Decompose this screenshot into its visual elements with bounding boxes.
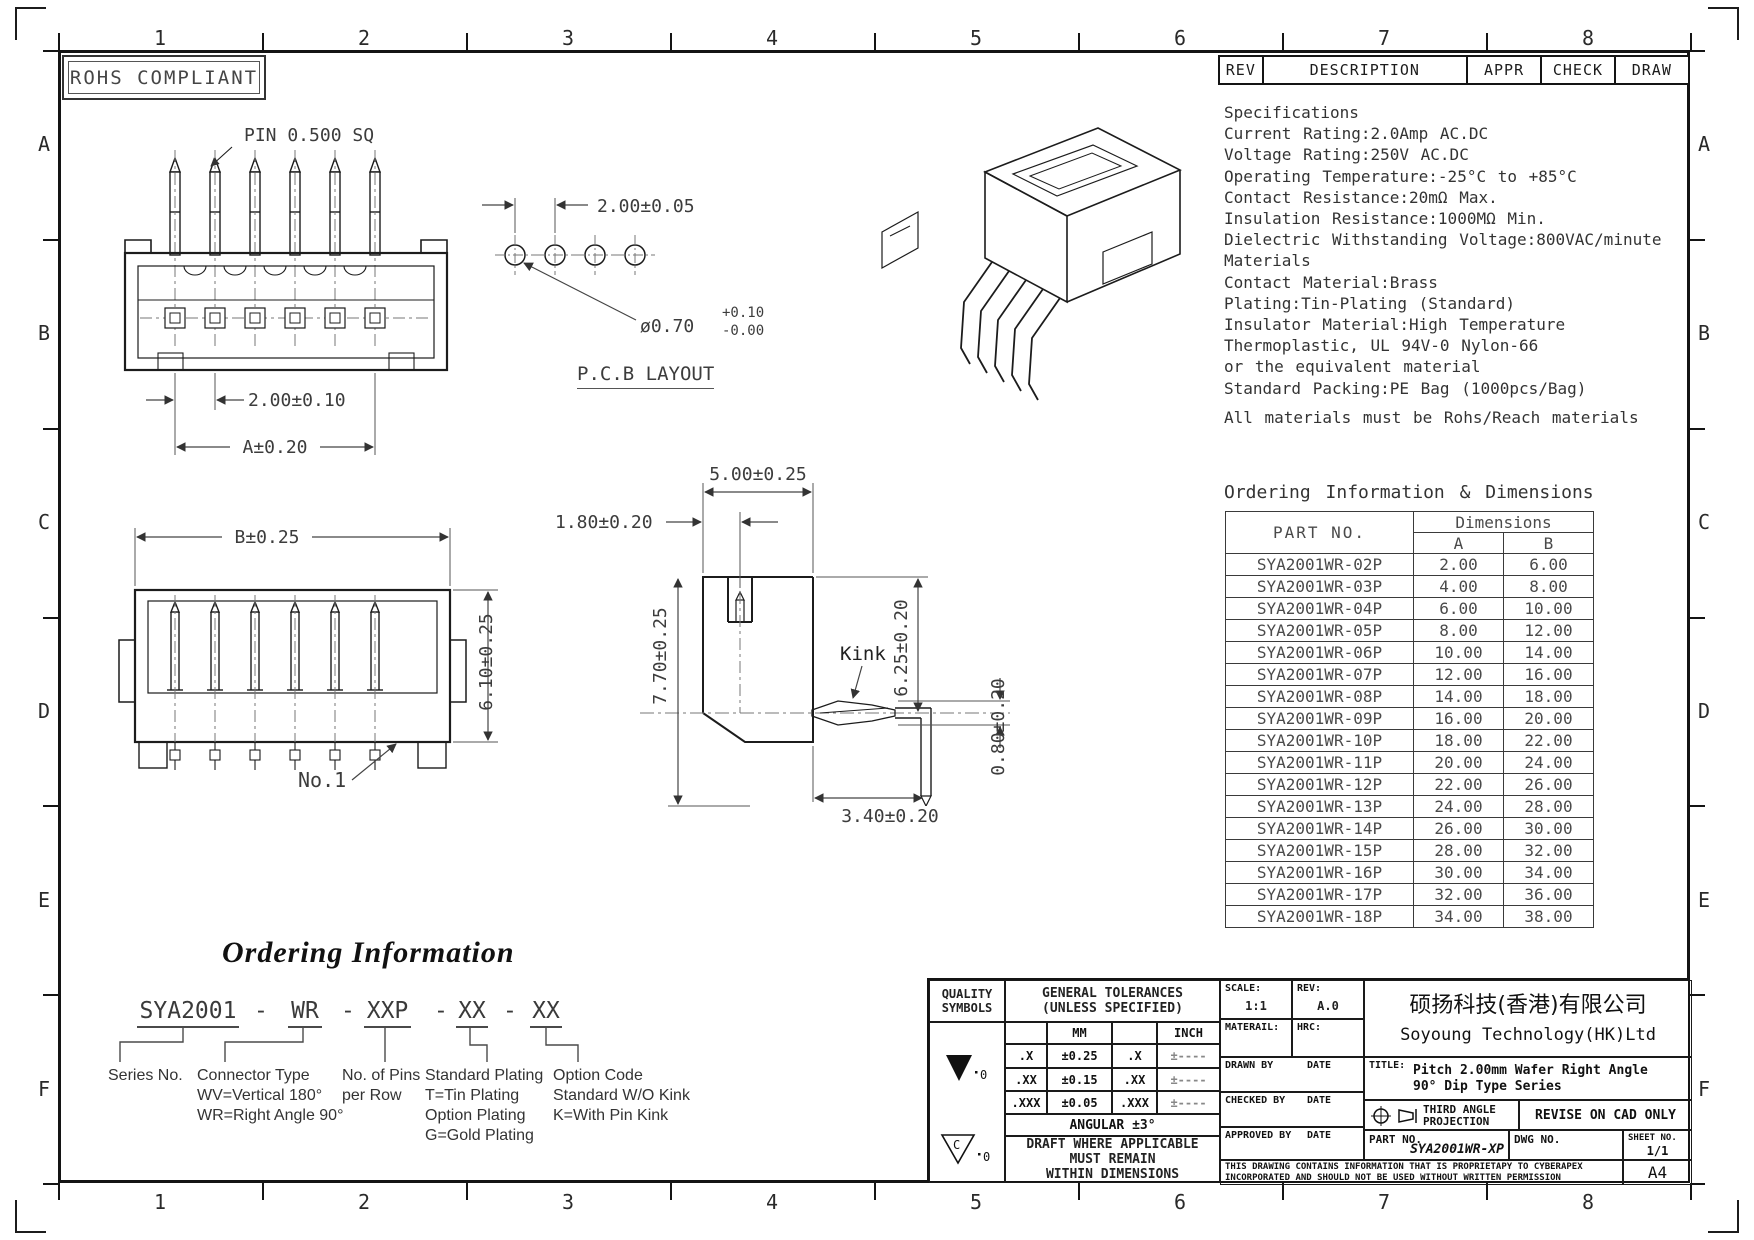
rear-overall-dim: B±0.25 <box>222 527 312 548</box>
legend-line: WR=Right Angle 90° <box>197 1106 343 1126</box>
company-name-en: Soyoung Technology(HK)Ltd <box>1365 1025 1691 1045</box>
front-overall-dim: A±0.20 <box>230 437 320 458</box>
pcb-pitch-dim: 2.00±0.05 <box>597 196 695 217</box>
check-col-header: CHECK <box>1542 57 1615 83</box>
table-row: SYA2001WR-14P26.0030.00 <box>1226 818 1594 840</box>
pcb-hole-tol-plus: +0.10 <box>722 305 764 321</box>
paper-size: A4 <box>1623 1160 1692 1185</box>
grid-col-label: 1 <box>148 1190 172 1214</box>
grid-col-label: 5 <box>964 26 988 50</box>
grid-row-label: F <box>1692 1077 1716 1101</box>
rear-height-dim: 6.10±0.25 <box>476 596 497 728</box>
rev-cell: REV: A.0 <box>1292 980 1364 1019</box>
side-offset-dim: 1.80±0.20 <box>555 512 653 533</box>
sheet-no-cell: SHEET NO. 1/1 <box>1623 1130 1692 1160</box>
table-row: SYA2001WR-09P16.0020.00 <box>1226 708 1594 730</box>
tol-mm-value: ±0.15 <box>1047 1068 1112 1091</box>
grid-tick <box>1690 1183 1705 1185</box>
revision-bar: REV DESCRIPTION APPR CHECK DRAW <box>1218 55 1690 85</box>
tol-inch-value: ±---- <box>1157 1068 1220 1091</box>
quality-symbols-header: QUALITY SYMBOLS <box>929 980 1005 1022</box>
drawing-title-line1: Pitch 2.00mm Wafer Right Angle <box>1413 1063 1648 1079</box>
grid-col-label: 8 <box>1576 26 1600 50</box>
grid-row-label: C <box>1692 510 1716 534</box>
grid-tick <box>43 239 58 241</box>
code-type: WR <box>288 998 322 1028</box>
part-no-value: SYA2001WR-XP <box>1410 1142 1504 1157</box>
grid-tick <box>1282 1183 1284 1200</box>
grid-tick <box>1486 1183 1488 1200</box>
grid-tick <box>43 50 58 52</box>
grid-tick <box>1690 50 1705 52</box>
grid-row-label: A <box>1692 132 1716 156</box>
code-series: SYA2001 <box>137 998 239 1028</box>
dwg-no-cell: DWG NO. <box>1509 1130 1623 1160</box>
grid-tick <box>43 1183 58 1185</box>
revise-note: REVISE ON CAD ONLY <box>1519 1100 1692 1130</box>
grid-tick <box>874 1183 876 1200</box>
grid-row-label: C <box>32 510 56 534</box>
ordering-legend-4: Option CodeStandard W/O KinkK=With Pin K… <box>553 1066 690 1126</box>
grid-tick <box>43 428 58 430</box>
scale-cell: SCALE: 1:1 <box>1220 980 1292 1019</box>
grid-col-label: 7 <box>1372 1190 1396 1214</box>
projection-cell: THIRD ANGLE PROJECTION <box>1364 1100 1519 1130</box>
code-separator: - <box>341 998 355 1024</box>
dimensions-header: Dimensions <box>1414 512 1594 533</box>
grid-col-label: 1 <box>148 26 172 50</box>
pin1-label: No.1 <box>298 768 346 792</box>
legend-line: K=With Pin Kink <box>553 1106 690 1126</box>
ordering-code-connectors <box>120 1027 578 1062</box>
table-row: SYA2001WR-06P10.0014.00 <box>1226 642 1594 664</box>
grid-row-label: D <box>32 699 56 723</box>
grid-tick <box>1078 33 1080 50</box>
legend-line: Series No. <box>108 1066 183 1086</box>
tol-mm-value: ±0.25 <box>1047 1044 1112 1068</box>
tol-row-label: .XXX <box>1112 1091 1157 1114</box>
grid-tick <box>43 994 58 996</box>
grid-col-label: 6 <box>1168 26 1192 50</box>
grid-tick <box>1690 805 1705 807</box>
grid-tick <box>262 33 264 50</box>
ordering-legend-1: Connector TypeWV=Vertical 180°WR=Right A… <box>197 1066 343 1126</box>
hrc-cell: HRC: <box>1292 1019 1364 1057</box>
ordering-table-title: Ordering Information & Dimensions <box>1224 482 1594 503</box>
spec-line: Current Rating:2.0Amp AC.DC <box>1224 123 1694 144</box>
rohs-badge-label: ROHS COMPLIANT <box>68 61 260 94</box>
grid-tick <box>1486 33 1488 50</box>
checked-by-cell: CHECKED BY DATE <box>1220 1092 1364 1127</box>
table-row: SYA2001WR-05P8.0012.00 <box>1226 620 1594 642</box>
appr-col-header: APPR <box>1468 57 1542 83</box>
isometric-view <box>882 128 1180 400</box>
spec-line: Insulator Material:High Temperature <box>1224 314 1694 335</box>
grid-tick <box>43 617 58 619</box>
third-angle-projection-icon <box>1369 1103 1421 1129</box>
drawing-sheet: ROHS COMPLIANT REV DESCRIPTION APPR CHEC… <box>0 0 1754 1240</box>
grid-tick <box>1690 33 1692 50</box>
grid-tick <box>43 805 58 807</box>
spec-line: Contact Material:Brass <box>1224 272 1694 293</box>
spec-line: Voltage Rating:250V AC.DC <box>1224 144 1694 165</box>
side-depth-dim: 5.00±0.25 <box>705 464 811 485</box>
grid-tick <box>670 1183 672 1200</box>
table-row: SYA2001WR-11P20.0024.00 <box>1226 752 1594 774</box>
drawing-title-line2: 90° Dip Type Series <box>1413 1079 1648 1095</box>
grid-col-label: 6 <box>1168 1190 1192 1214</box>
code-option: XX <box>530 998 562 1028</box>
table-row: SYA2001WR-08P14.0018.00 <box>1226 686 1594 708</box>
grid-row-label: D <box>1692 699 1716 723</box>
spec-line: or the equivalent material <box>1224 356 1694 377</box>
grid-tick <box>262 1183 264 1200</box>
table-row: SYA2001WR-16P30.0034.00 <box>1226 862 1594 884</box>
table-row: SYA2001WR-17P32.0036.00 <box>1226 884 1594 906</box>
general-tolerances-header: GENERAL TOLERANCES (UNLESS SPECIFIED) <box>1005 980 1220 1022</box>
side-body-dim: 6.25±0.20 <box>891 580 912 716</box>
table-row: SYA2001WR-07P12.0016.00 <box>1226 664 1594 686</box>
grid-col-label: 3 <box>556 1190 580 1214</box>
spec-line: Plating:Tin-Plating (Standard) <box>1224 293 1694 314</box>
dim-a-header: A <box>1414 533 1504 554</box>
draw-col-header: DRAW <box>1616 57 1688 83</box>
legend-line: WV=Vertical 180° <box>197 1086 343 1106</box>
grid-tick <box>670 33 672 50</box>
pcb-hole-tol-minus: -0.00 <box>722 323 764 339</box>
front-pitch-dim: 2.00±0.10 <box>248 390 346 411</box>
grid-col-label: 2 <box>352 26 376 50</box>
spec-line: Standard Packing:PE Bag (1000pcs/Bag) <box>1224 378 1694 399</box>
kink-label: Kink <box>840 643 886 665</box>
ordering-legend-2: No. of Pinsper Row <box>342 1066 420 1106</box>
quality-symbols-area: 0 C 0 <box>929 1022 1005 1183</box>
company-name-cn: 硕扬科技(香港)有限公司 <box>1365 987 1691 1019</box>
table-row: SYA2001WR-03P4.008.00 <box>1226 576 1594 598</box>
spec-line: All materials must be Rohs/Reach materia… <box>1224 407 1694 428</box>
title-block: QUALITY SYMBOLS 0 C 0 GENERAL TOLERANCES… <box>927 978 1690 1183</box>
table-row: SYA2001WR-15P28.0032.00 <box>1226 840 1594 862</box>
part-no-cell: PART NO. SYA2001WR-XP <box>1364 1130 1509 1160</box>
spec-line: Insulation Resistance:1000MΩ Min. <box>1224 208 1694 229</box>
rear-view <box>119 528 498 780</box>
code-separator: - <box>434 998 448 1024</box>
side-view <box>640 483 1010 806</box>
code-plating: XX <box>456 998 488 1028</box>
grid-col-label: 4 <box>760 26 784 50</box>
specifications-block: Specifications Current Rating:2.0Amp AC.… <box>1224 102 1694 428</box>
side-height-dim: 7.70±0.25 <box>650 586 671 726</box>
rohs-badge: ROHS COMPLIANT <box>62 55 266 100</box>
grid-tick <box>1690 994 1705 996</box>
grid-row-label: E <box>1692 888 1716 912</box>
grid-col-label: 4 <box>760 1190 784 1214</box>
svg-text:C: C <box>953 1138 960 1152</box>
proprietary-disclaimer: THIS DRAWING CONTAINS INFORMATION THAT I… <box>1220 1160 1623 1185</box>
mm-header: MM <box>1047 1022 1112 1044</box>
legend-line: No. of Pins <box>342 1066 420 1086</box>
grid-row-label: B <box>1692 321 1716 345</box>
ordering-info-title: Ordering Information <box>222 936 515 970</box>
rev-value: A.0 <box>1293 993 1363 1018</box>
inch-header: INCH <box>1157 1022 1220 1044</box>
spec-line: Dielectric Withstanding Voltage:800VAC/m… <box>1224 229 1694 250</box>
grid-row-label: A <box>32 132 56 156</box>
draft-note: DRAFT WHERE APPLICABLE MUST REMAIN WITHI… <box>1005 1136 1220 1183</box>
circled-quality-symbol: C 0 <box>936 1127 998 1171</box>
company-cell: 硕扬科技(香港)有限公司 Soyoung Technology(HK)Ltd <box>1364 980 1692 1057</box>
pcb-layout-caption: P.C.B LAYOUT <box>577 363 714 389</box>
grid-col-label: 2 <box>352 1190 376 1214</box>
table-row: SYA2001WR-18P34.0038.00 <box>1226 906 1594 928</box>
table-row: SYA2001WR-13P24.0028.00 <box>1226 796 1594 818</box>
code-pins: XXP <box>364 998 411 1028</box>
tol-row-label: .X <box>1112 1044 1157 1068</box>
rev-col-header: REV <box>1220 57 1264 83</box>
legend-line: per Row <box>342 1086 420 1106</box>
grid-row-label: E <box>32 888 56 912</box>
kink-height-dim: 0.80±0.20 <box>988 672 1009 782</box>
legend-line: Standard Plating <box>425 1066 543 1086</box>
pcb-hole-dim: ø0.70 <box>640 316 694 337</box>
tol-row-label: .X <box>1005 1044 1047 1068</box>
grid-row-label: F <box>32 1077 56 1101</box>
legend-line: G=Gold Plating <box>425 1126 543 1146</box>
part-no-header: PART NO. <box>1226 512 1414 554</box>
grid-col-label: 7 <box>1372 26 1396 50</box>
legend-line: Standard W/O Kink <box>553 1086 690 1106</box>
surface-finish-symbol: 0 <box>938 1049 996 1089</box>
grid-col-label: 5 <box>964 1190 988 1214</box>
scale-value: 1:1 <box>1221 993 1291 1018</box>
grid-tick <box>1690 1183 1692 1200</box>
side-tail-dim: 3.40±0.20 <box>838 806 942 827</box>
parts-table-body: SYA2001WR-02P2.006.00SYA2001WR-03P4.008.… <box>1226 554 1594 928</box>
material-cell: MATERAIL: <box>1220 1019 1292 1057</box>
spec-line: Operating Temperature:-25°C to +85°C <box>1224 166 1694 187</box>
spec-line: Materials <box>1224 250 1694 271</box>
angular-tolerance: ANGULAR ±3° <box>1005 1114 1220 1136</box>
grid-tick <box>874 33 876 50</box>
spec-line: Thermoplastic, UL 94V-0 Nylon-66 <box>1224 335 1694 356</box>
grid-col-label: 8 <box>1576 1190 1600 1214</box>
sheet-no-value: 1/1 <box>1624 1144 1691 1158</box>
svg-text:0: 0 <box>983 1150 990 1164</box>
legend-line: Connector Type <box>197 1066 343 1086</box>
specifications-lines: Current Rating:2.0Amp AC.DCVoltage Ratin… <box>1224 123 1694 428</box>
ordering-legend-3: Standard PlatingT=Tin PlatingOption Plat… <box>425 1066 543 1146</box>
tol-row-label: .XX <box>1005 1068 1047 1091</box>
table-row: SYA2001WR-12P22.0026.00 <box>1226 774 1594 796</box>
front-pin-label: PIN 0.500 SQ <box>244 125 374 146</box>
dim-b-header: B <box>1504 533 1594 554</box>
table-row: SYA2001WR-04P6.0010.00 <box>1226 598 1594 620</box>
grid-row-label: B <box>32 321 56 345</box>
grid-col-label: 3 <box>556 26 580 50</box>
description-col-header: DESCRIPTION <box>1264 57 1468 83</box>
grid-tick <box>1690 617 1705 619</box>
tol-row-label: .XX <box>1112 1068 1157 1091</box>
approved-by-cell: APPROVED BY DATE <box>1220 1127 1364 1160</box>
grid-tick <box>58 33 60 50</box>
code-separator: - <box>254 998 268 1024</box>
grid-tick <box>1078 1183 1080 1200</box>
ordering-legend-0: Series No. <box>108 1066 183 1086</box>
table-row: SYA2001WR-02P2.006.00 <box>1226 554 1594 576</box>
specifications-title: Specifications <box>1224 102 1694 123</box>
table-row: SYA2001WR-10P18.0022.00 <box>1226 730 1594 752</box>
grid-tick <box>466 33 468 50</box>
grid-tick <box>1282 33 1284 50</box>
legend-line: T=Tin Plating <box>425 1086 543 1106</box>
tol-row-label: .XXX <box>1005 1091 1047 1114</box>
tol-inch-value: ±---- <box>1157 1044 1220 1068</box>
code-separator: - <box>503 998 517 1024</box>
grid-tick <box>58 1183 60 1200</box>
legend-line: Option Plating <box>425 1106 543 1126</box>
tol-inch-value: ±---- <box>1157 1091 1220 1114</box>
legend-line: Option Code <box>553 1066 690 1086</box>
grid-tick <box>466 1183 468 1200</box>
ordering-dimensions-table: PART NO. Dimensions A B SYA2001WR-02P2.0… <box>1225 511 1594 928</box>
spec-line: Contact Resistance:20mΩ Max. <box>1224 187 1694 208</box>
drawn-by-cell: DRAWN BY DATE <box>1220 1057 1364 1092</box>
title-cell: TITLE: Pitch 2.00mm Wafer Right Angle 90… <box>1364 1057 1692 1100</box>
tol-mm-value: ±0.05 <box>1047 1091 1112 1114</box>
svg-text:0: 0 <box>980 1068 987 1082</box>
